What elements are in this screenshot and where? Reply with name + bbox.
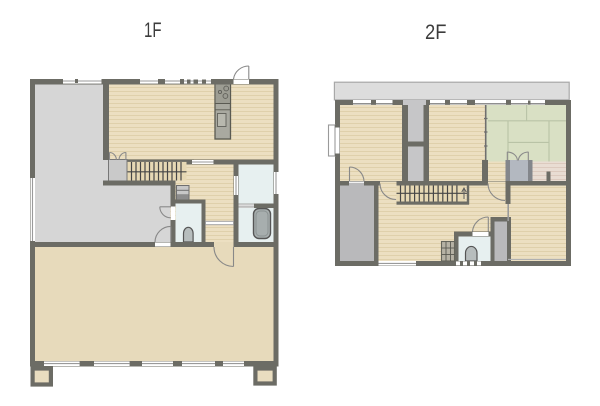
svg-text:2F: 2F <box>425 20 447 44</box>
svg-text:1F: 1F <box>144 18 162 42</box>
